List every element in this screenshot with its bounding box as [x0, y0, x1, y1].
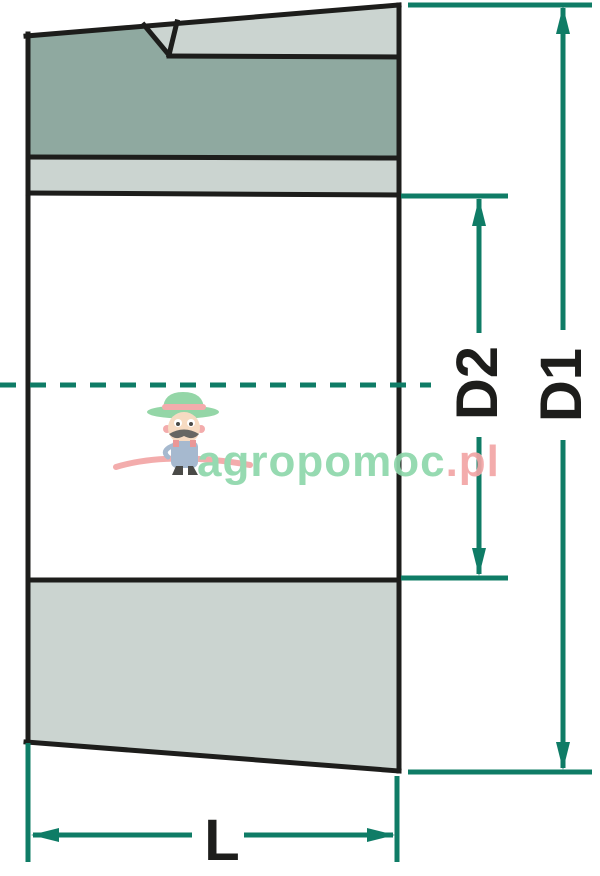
upper-ring-section: [28, 157, 398, 195]
d2-label: D2: [445, 346, 510, 420]
length-arrowhead-right-icon: [367, 828, 395, 842]
d2-arrowhead-up-icon: [472, 198, 486, 226]
mascot-hat-band: [162, 404, 206, 410]
bore-top-line: [28, 193, 399, 195]
d1-label: D1: [529, 348, 594, 422]
mascot-eye-right: [189, 422, 193, 426]
d1-arrowhead-up-icon: [556, 6, 570, 34]
d1-arrowhead-down-icon: [556, 742, 570, 770]
watermark-brand-text: agropomoc: [197, 437, 446, 486]
mascot-face: [168, 412, 200, 444]
drawing-canvas: D1 D2 L: [0, 0, 600, 876]
length-arrowhead-left-icon: [31, 828, 59, 842]
watermark-tld-text: .pl: [446, 437, 500, 486]
mascot-strap-right: [190, 440, 196, 447]
wedge-bottom-line: [169, 56, 399, 57]
flange-bottom-line: [28, 157, 399, 158]
d2-arrowhead-down-icon: [472, 548, 486, 576]
mascot-eye-left: [176, 422, 180, 426]
watermark-text: agropomoc.pl: [197, 437, 500, 486]
top-taper-wedge-section: [144, 4, 398, 57]
length-label: L: [204, 808, 239, 873]
bottom-taper-section: [27, 580, 398, 770]
taper-bush-technical-drawing: D1 D2 L: [0, 0, 600, 876]
mascot-strap-left: [173, 440, 179, 447]
